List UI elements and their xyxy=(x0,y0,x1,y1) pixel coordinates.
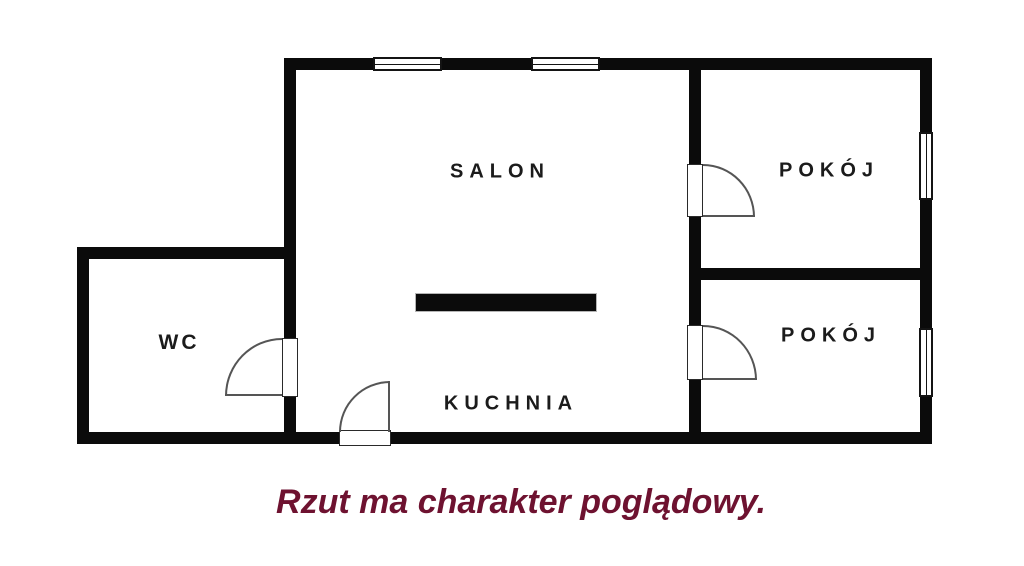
window-right-1 xyxy=(919,132,933,200)
door-swing-arc xyxy=(339,381,390,432)
room-label-pokoj-2: POKÓJ xyxy=(781,325,881,348)
door-leaf xyxy=(703,378,757,380)
room-label-pokoj-1: POKÓJ xyxy=(779,160,879,183)
wall-salon-pokoj-divider xyxy=(689,58,701,444)
door-opening xyxy=(687,164,703,217)
door-opening xyxy=(339,430,391,446)
door-opening xyxy=(282,338,298,397)
room-label-wc: WC xyxy=(159,331,200,355)
window-top-2 xyxy=(531,57,600,71)
door-leaf xyxy=(388,381,390,432)
wall-wc-left xyxy=(77,247,89,444)
window-right-2 xyxy=(919,328,933,397)
room-label-salon: SALON xyxy=(450,161,550,184)
wall-pokoj-pokoj-divider xyxy=(689,268,932,280)
door-leaf xyxy=(225,394,282,396)
door-opening xyxy=(687,325,703,380)
door-swing-arc xyxy=(703,164,755,217)
door-leaf xyxy=(703,215,755,217)
window-top-1 xyxy=(373,57,442,71)
caption-disclaimer: Rzut ma charakter poglądowy. xyxy=(276,483,766,522)
door-swing-arc xyxy=(703,325,757,380)
room-label-kuchnia: KUCHNIA xyxy=(444,393,578,416)
wall-wc-top xyxy=(77,247,296,259)
floor-plan: SALON KUCHNIA WC POKÓJ POKÓJ Rzut ma cha… xyxy=(0,0,1024,566)
kitchen-counter-bar xyxy=(415,293,597,312)
door-swing-arc xyxy=(225,338,282,396)
wall-bottom xyxy=(77,432,932,444)
